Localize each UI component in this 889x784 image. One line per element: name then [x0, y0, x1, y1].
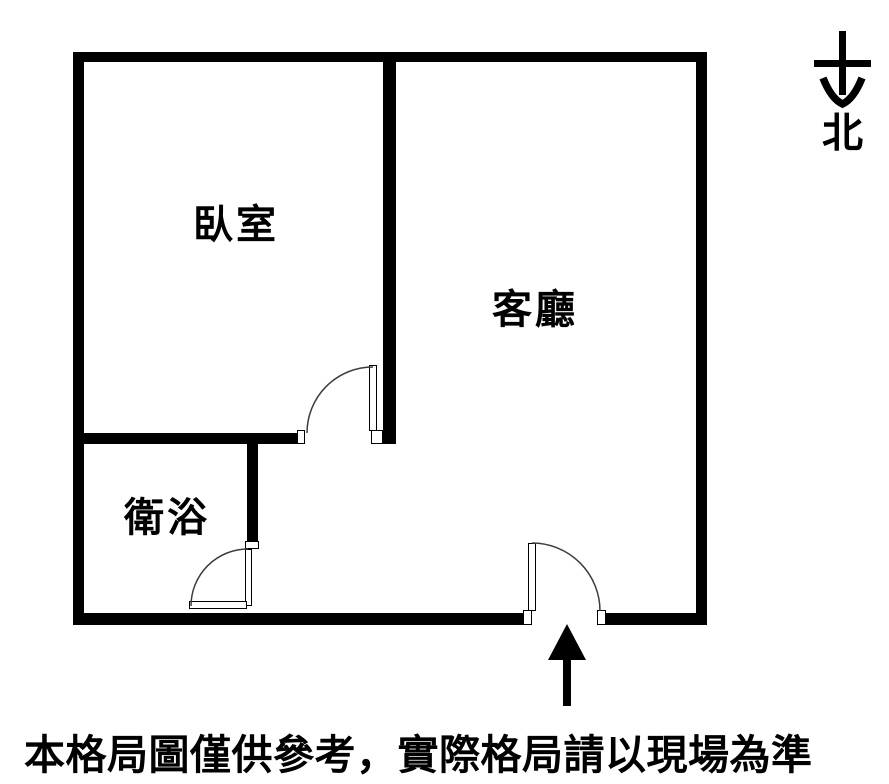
living-room-label: 客廳 [455, 288, 615, 332]
entrance-door-arc [532, 543, 600, 611]
bedroom-door-arc [307, 367, 373, 433]
disclaimer-text: 本格局圖僅供參考，實際格局請以現場為準 [24, 733, 813, 778]
north-label: 北 [810, 111, 875, 156]
bathroom-door-arc [191, 549, 248, 606]
north-arrow-crossbar [814, 60, 871, 67]
bedroom-label: 臥室 [156, 203, 316, 247]
entrance-arrow-shaft [563, 656, 571, 706]
bathroom-label: 衛浴 [87, 496, 247, 540]
floor-plan: 臥室 客廳 衛浴 北 本格局圖僅供參考，實際格局請以現場為準 [0, 0, 889, 784]
plan-graphics-overlay [0, 0, 889, 784]
entrance-arrowhead-icon [548, 624, 586, 660]
